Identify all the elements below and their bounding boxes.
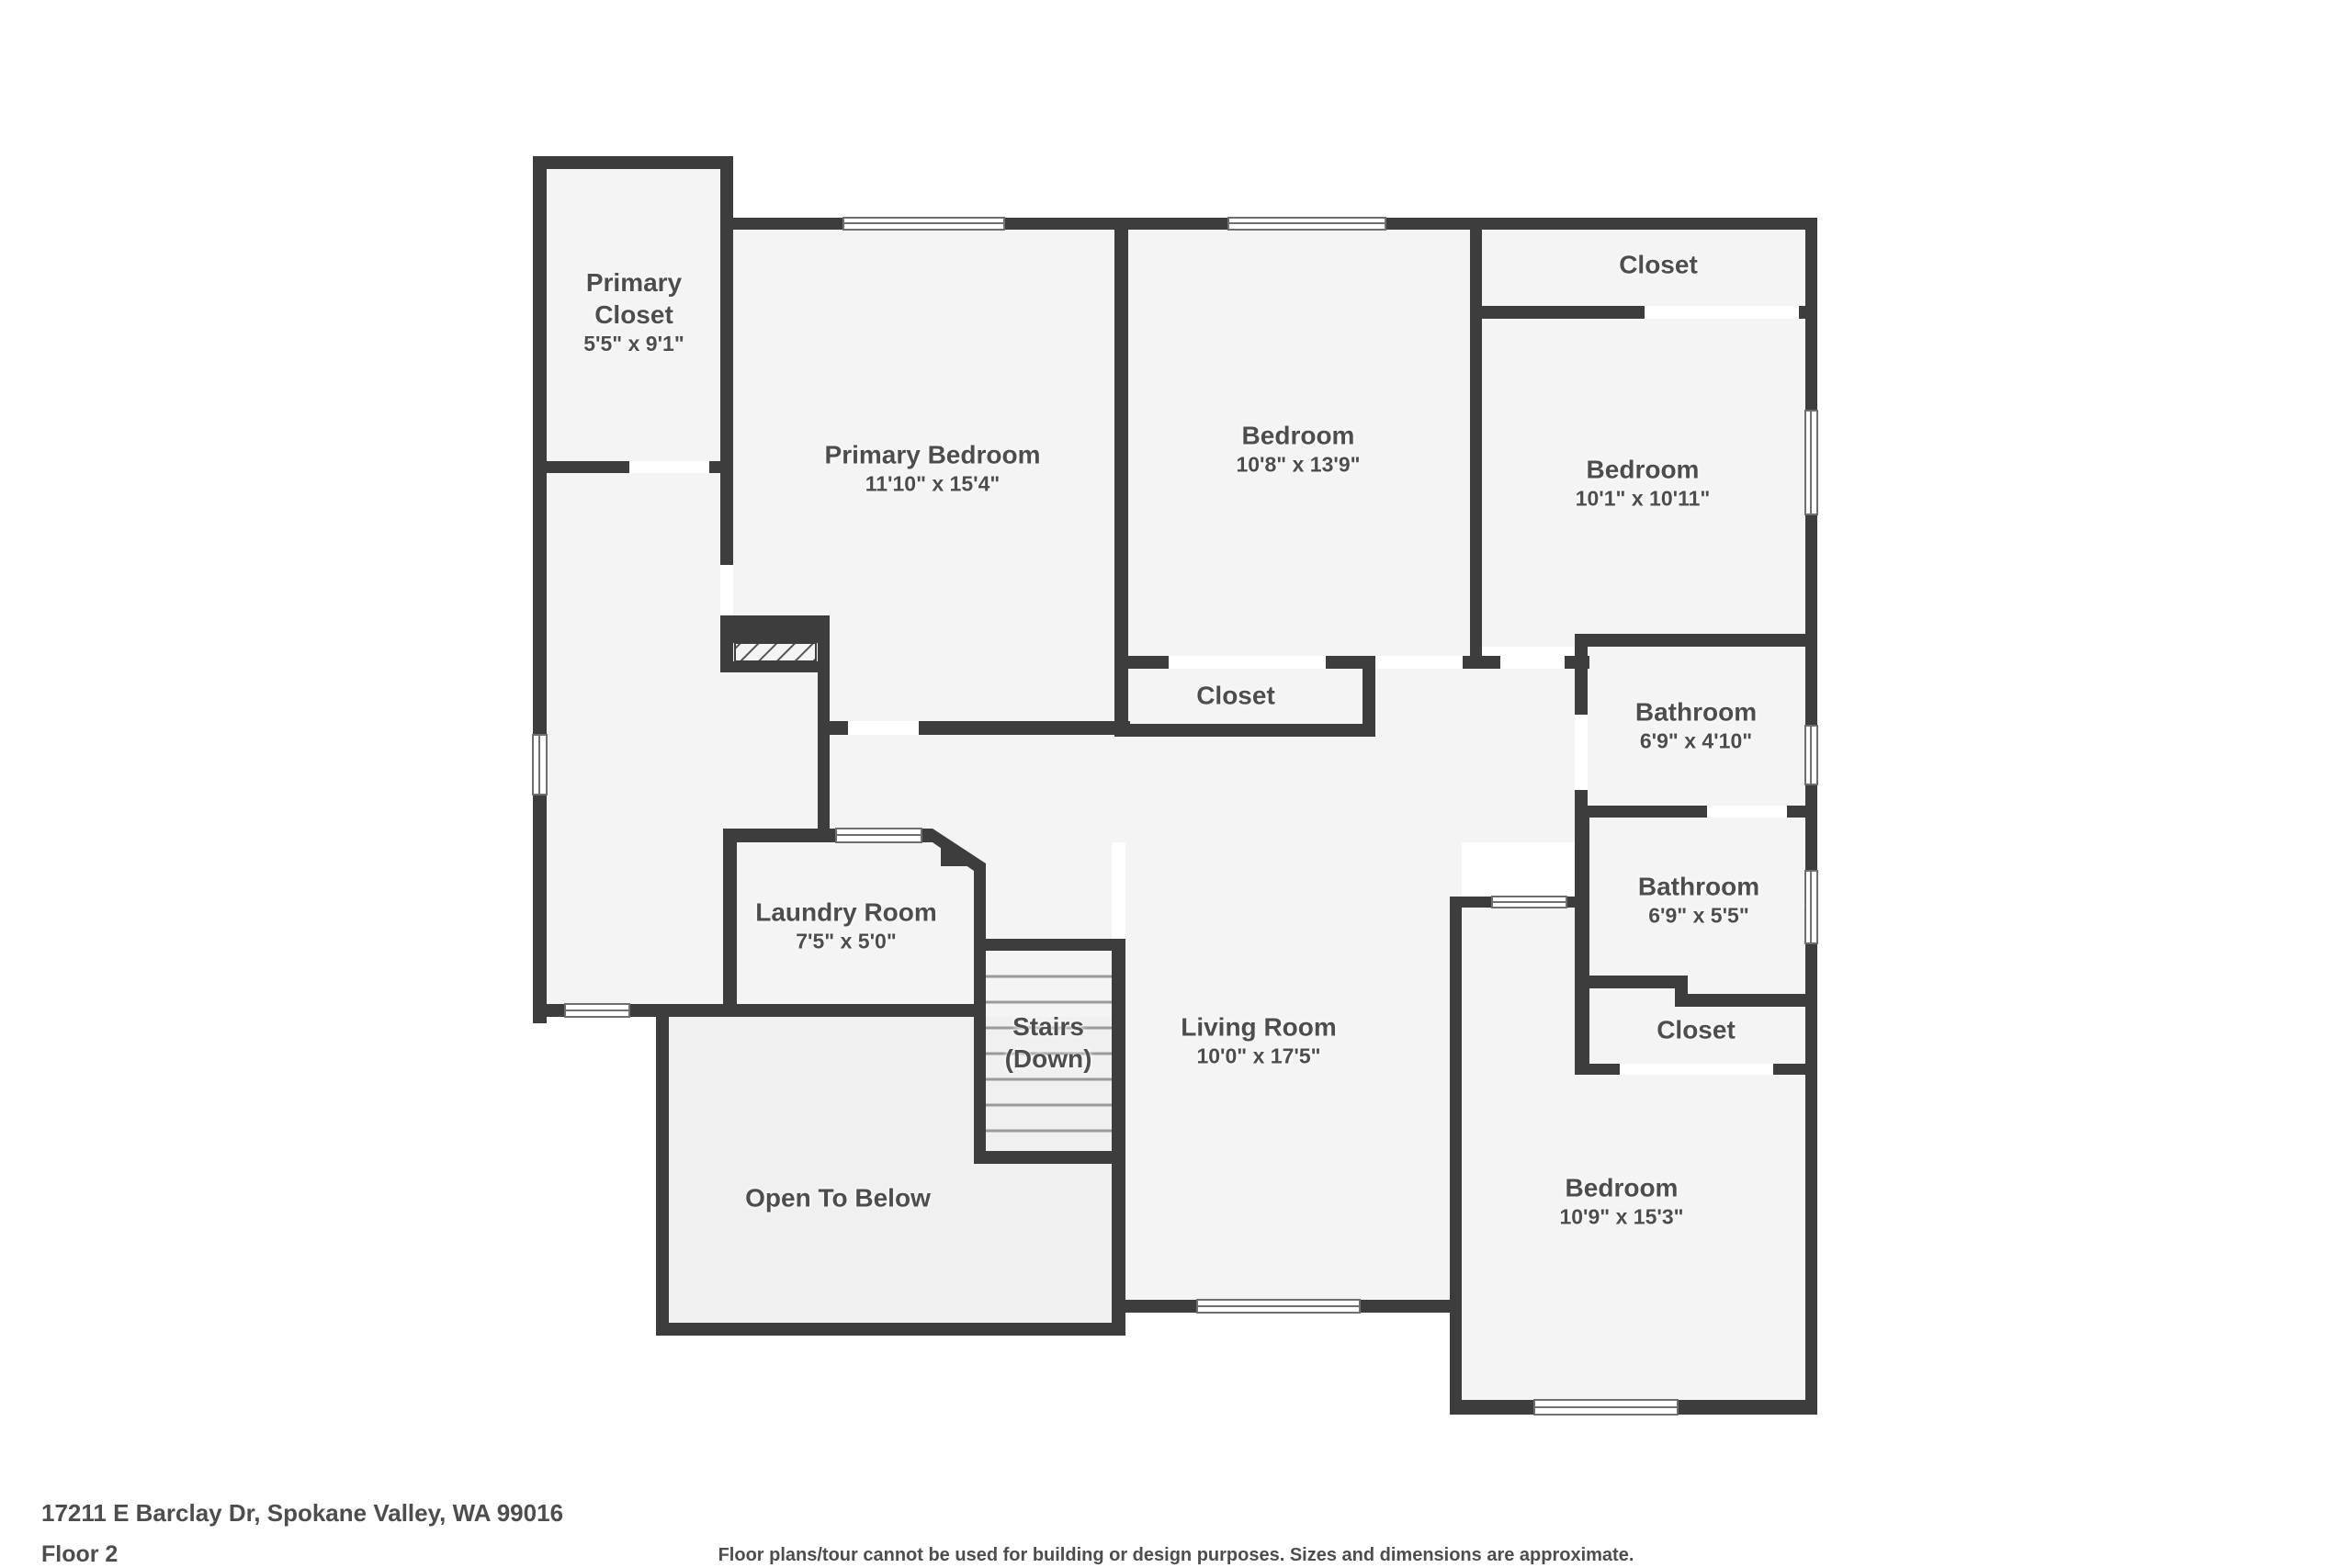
window: [1534, 1400, 1678, 1415]
floor-plan-drawing: [0, 0, 2352, 1568]
window: [843, 218, 1004, 230]
room-label-closet-bottom-right: Closet: [1604, 1014, 1788, 1046]
living-room-area: [1125, 670, 1462, 1300]
window: [1228, 218, 1385, 230]
address-text: 17211 E Barclay Dr, Spokane Valley, WA 9…: [41, 1499, 563, 1528]
built-in-top-bar: [720, 615, 830, 643]
room-label-open-to-below: Open To Below: [654, 1182, 1022, 1214]
window: [1805, 726, 1817, 784]
room-label-laundry-room: Laundry Room 7'5" x 5'0": [690, 897, 1002, 956]
floor-plan-page: Primary Closet 5'5" x 9'1" Primary Bedro…: [0, 0, 2352, 1568]
window: [565, 1004, 629, 1017]
room-label-bedroom-4: Bedroom 10'9" x 15'3": [1484, 1172, 1759, 1232]
room-label-living-room: Living Room 10'0" x 17'5": [1112, 1011, 1406, 1071]
window: [1492, 897, 1566, 908]
window: [1805, 411, 1817, 514]
built-in-hatch: [735, 643, 816, 661]
window: [533, 735, 547, 795]
room-label-closet-middle: Closet: [1144, 680, 1328, 712]
room-label-bathroom-1: Bathroom 6'9" x 4'10": [1586, 696, 1806, 756]
room-label-primary-bedroom: Primary Bedroom 11'10" x 15'4": [740, 439, 1125, 499]
room-label-bedroom-3: Bedroom 10'1" x 10'11": [1505, 454, 1781, 513]
room-label-closet-top-right: Closet: [1566, 249, 1750, 281]
disclaimer-text: Floor plans/tour cannot be used for buil…: [0, 1545, 2352, 1566]
window: [836, 829, 922, 842]
built-in-bottom-bar: [720, 661, 830, 672]
window: [1197, 1300, 1360, 1313]
bathroom-east-wall: [818, 615, 830, 842]
room-label-bathroom-2: Bathroom 6'9" x 5'5": [1589, 871, 1809, 931]
room-label-bedroom-2: Bedroom 10'8" x 13'9": [1160, 420, 1436, 479]
room-label-primary-closet: Primary Closet 5'5" x 9'1": [556, 266, 712, 358]
